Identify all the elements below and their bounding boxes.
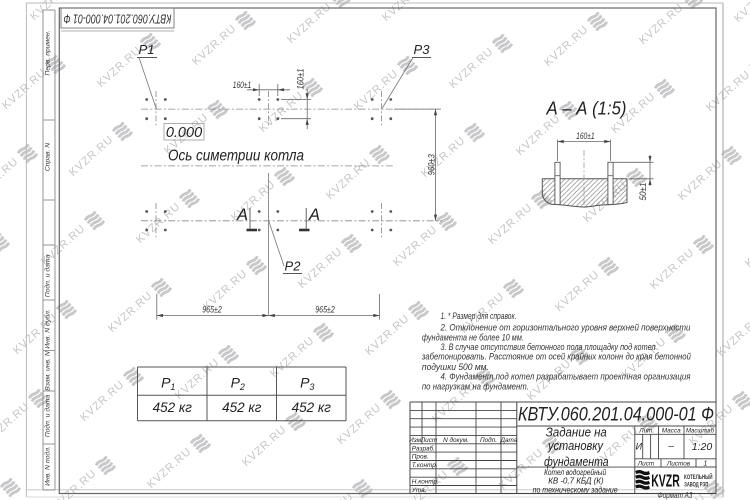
svg-text:–: – bbox=[667, 441, 674, 452]
svg-text:Лист: Лист bbox=[420, 437, 438, 444]
svg-text:забетонировать. Расстояние от: забетонировать. Расстояние от осей крайн… bbox=[421, 352, 691, 362]
svg-text:подушки 500 мм.: подушки 500 мм. bbox=[422, 362, 489, 372]
svg-text:P2: P2 bbox=[285, 259, 302, 274]
svg-text:Разраб.: Разраб. bbox=[412, 444, 435, 452]
svg-text:Взам. инв. N: Взам. инв. N bbox=[45, 351, 52, 391]
svg-text:А – А (1:5): А – А (1:5) bbox=[546, 99, 627, 119]
svg-text:1: 1 bbox=[704, 461, 708, 468]
svg-text:452 кг: 452 кг bbox=[292, 400, 332, 415]
svg-text:КВТУ.060.201.04.000-01 Ф: КВТУ.060.201.04.000-01 Ф bbox=[63, 11, 171, 25]
svg-text:ЗАВОД РЭП: ЗАВОД РЭП bbox=[684, 483, 708, 489]
svg-text:КВ -0,7 КБД (К): КВ -0,7 КБД (К) bbox=[548, 477, 604, 486]
svg-text:Дата: Дата bbox=[499, 437, 517, 444]
svg-text:Задание на: Задание на bbox=[546, 426, 607, 440]
svg-text:Формат А3: Формат А3 bbox=[658, 491, 693, 500]
svg-text:Подп.: Подп. bbox=[480, 436, 497, 444]
svg-text:установку: установку bbox=[547, 439, 604, 453]
svg-text:2. Отклонение от горизонтально: 2. Отклонение от горизонтального уровня … bbox=[440, 322, 691, 332]
svg-text:160±1: 160±1 bbox=[296, 69, 307, 90]
svg-text:4. Фундамент под котел разраба: 4. Фундамент под котел разрабатывает про… bbox=[441, 372, 691, 382]
svg-text:Утв.: Утв. bbox=[411, 487, 427, 494]
svg-text:Н.контр.: Н.контр. bbox=[412, 479, 439, 486]
svg-text:Инв. N дубл.: Инв. N дубл. bbox=[44, 309, 52, 348]
svg-text:Пров.: Пров. bbox=[412, 454, 429, 461]
svg-text:960±3: 960±3 bbox=[427, 154, 438, 176]
svg-text:965±2: 965±2 bbox=[202, 305, 222, 316]
svg-text:50±1: 50±1 bbox=[638, 183, 649, 201]
svg-text:Ось симетрии котла: Ось симетрии котла bbox=[168, 148, 304, 165]
svg-text:1. * Размер для справок.: 1. * Размер для справок. bbox=[441, 311, 517, 321]
svg-text:Масса: Масса bbox=[662, 428, 681, 435]
svg-text:1:20: 1:20 bbox=[692, 441, 713, 453]
svg-text:фундамента: фундамента bbox=[544, 455, 609, 469]
svg-text:Подп. и дата: Подп. и дата bbox=[44, 255, 52, 298]
svg-text:по нагрузкам на фундамент.: по нагрузкам на фундамент. bbox=[422, 382, 529, 392]
svg-text:Листов: Листов bbox=[666, 461, 691, 468]
svg-text:Масштаб: Масштаб bbox=[686, 427, 714, 435]
svg-text:P3: P3 bbox=[414, 42, 431, 57]
svg-text:452 кг: 452 кг bbox=[222, 400, 262, 415]
svg-text:N докум.: N докум. bbox=[443, 436, 469, 444]
svg-text:Справ. N: Справ. N bbox=[45, 143, 52, 172]
svg-text:А: А bbox=[308, 206, 320, 224]
svg-text:Подп. и дата: Подп. и дата bbox=[44, 395, 52, 438]
svg-text:160±1: 160±1 bbox=[233, 80, 252, 91]
svg-text:KVZR: KVZR bbox=[651, 471, 680, 491]
svg-text:И: И bbox=[636, 442, 643, 452]
svg-text:160±1: 160±1 bbox=[576, 131, 595, 142]
svg-text:3. В случае отсутствия бетонно: 3. В случае отсутствия бетонного пола пл… bbox=[441, 342, 656, 352]
svg-text:Т.контр.: Т.контр. bbox=[412, 462, 438, 469]
svg-text:КВТУ.060.201.04.000-01 Ф: КВТУ.060.201.04.000-01 Ф bbox=[518, 405, 714, 426]
svg-text:А: А bbox=[236, 206, 248, 224]
svg-text:Перв. примен.: Перв. примен. bbox=[45, 30, 52, 75]
svg-text:Лит.: Лит. bbox=[638, 428, 654, 435]
svg-text:КОТЕЛЬНЫЙ: КОТЕЛЬНЫЙ bbox=[684, 473, 713, 481]
svg-text:452 кг: 452 кг bbox=[153, 400, 193, 415]
svg-text:по техническому задание: по техническому задание bbox=[533, 485, 618, 494]
svg-text:Лист: Лист bbox=[637, 461, 655, 468]
svg-text:Инв. N подл.: Инв. N подл. bbox=[44, 446, 52, 486]
svg-text:965±2: 965±2 bbox=[315, 305, 335, 316]
svg-text:0.000: 0.000 bbox=[166, 125, 202, 141]
svg-text:P1: P1 bbox=[139, 42, 155, 57]
